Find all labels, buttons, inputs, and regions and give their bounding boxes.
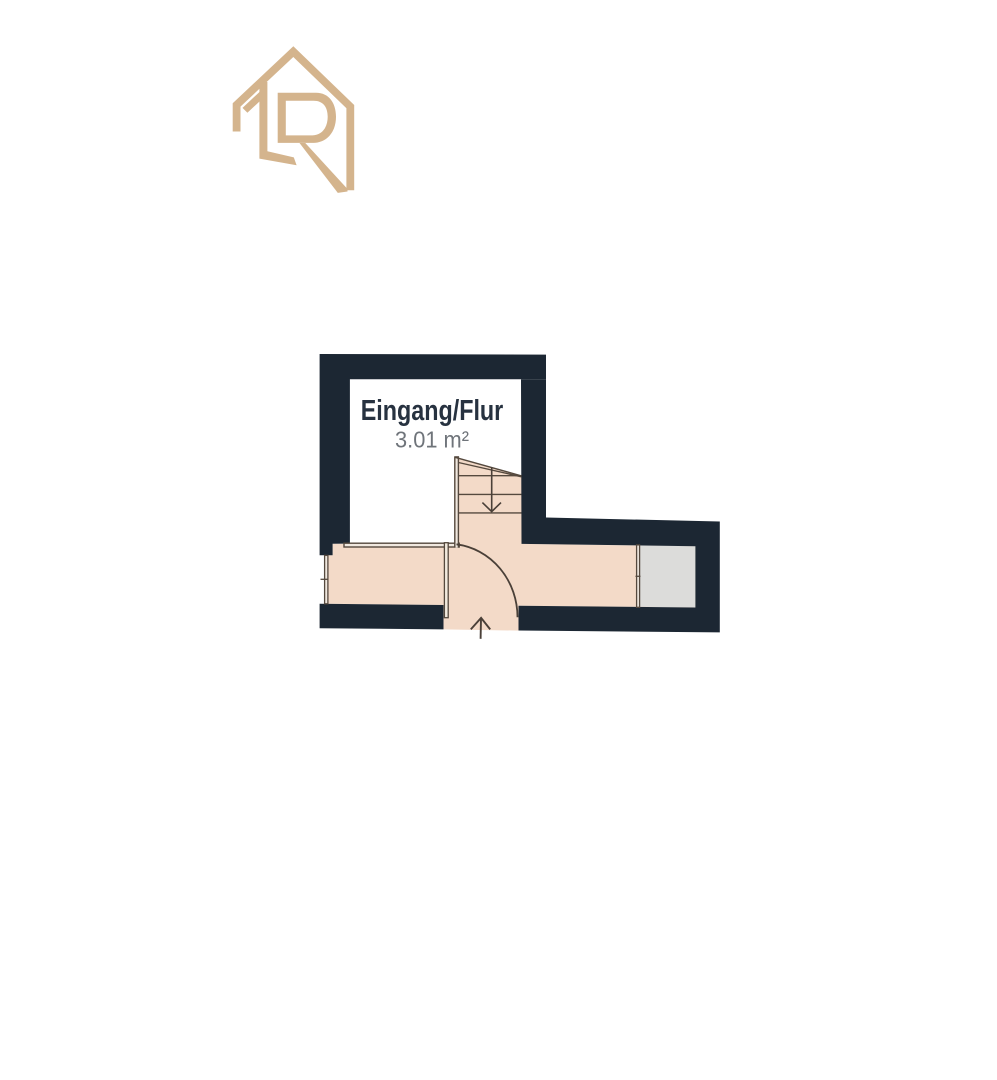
svg-text:Eingang/Flur: Eingang/Flur <box>361 395 504 427</box>
svg-text:3.01 m²: 3.01 m² <box>395 426 469 452</box>
